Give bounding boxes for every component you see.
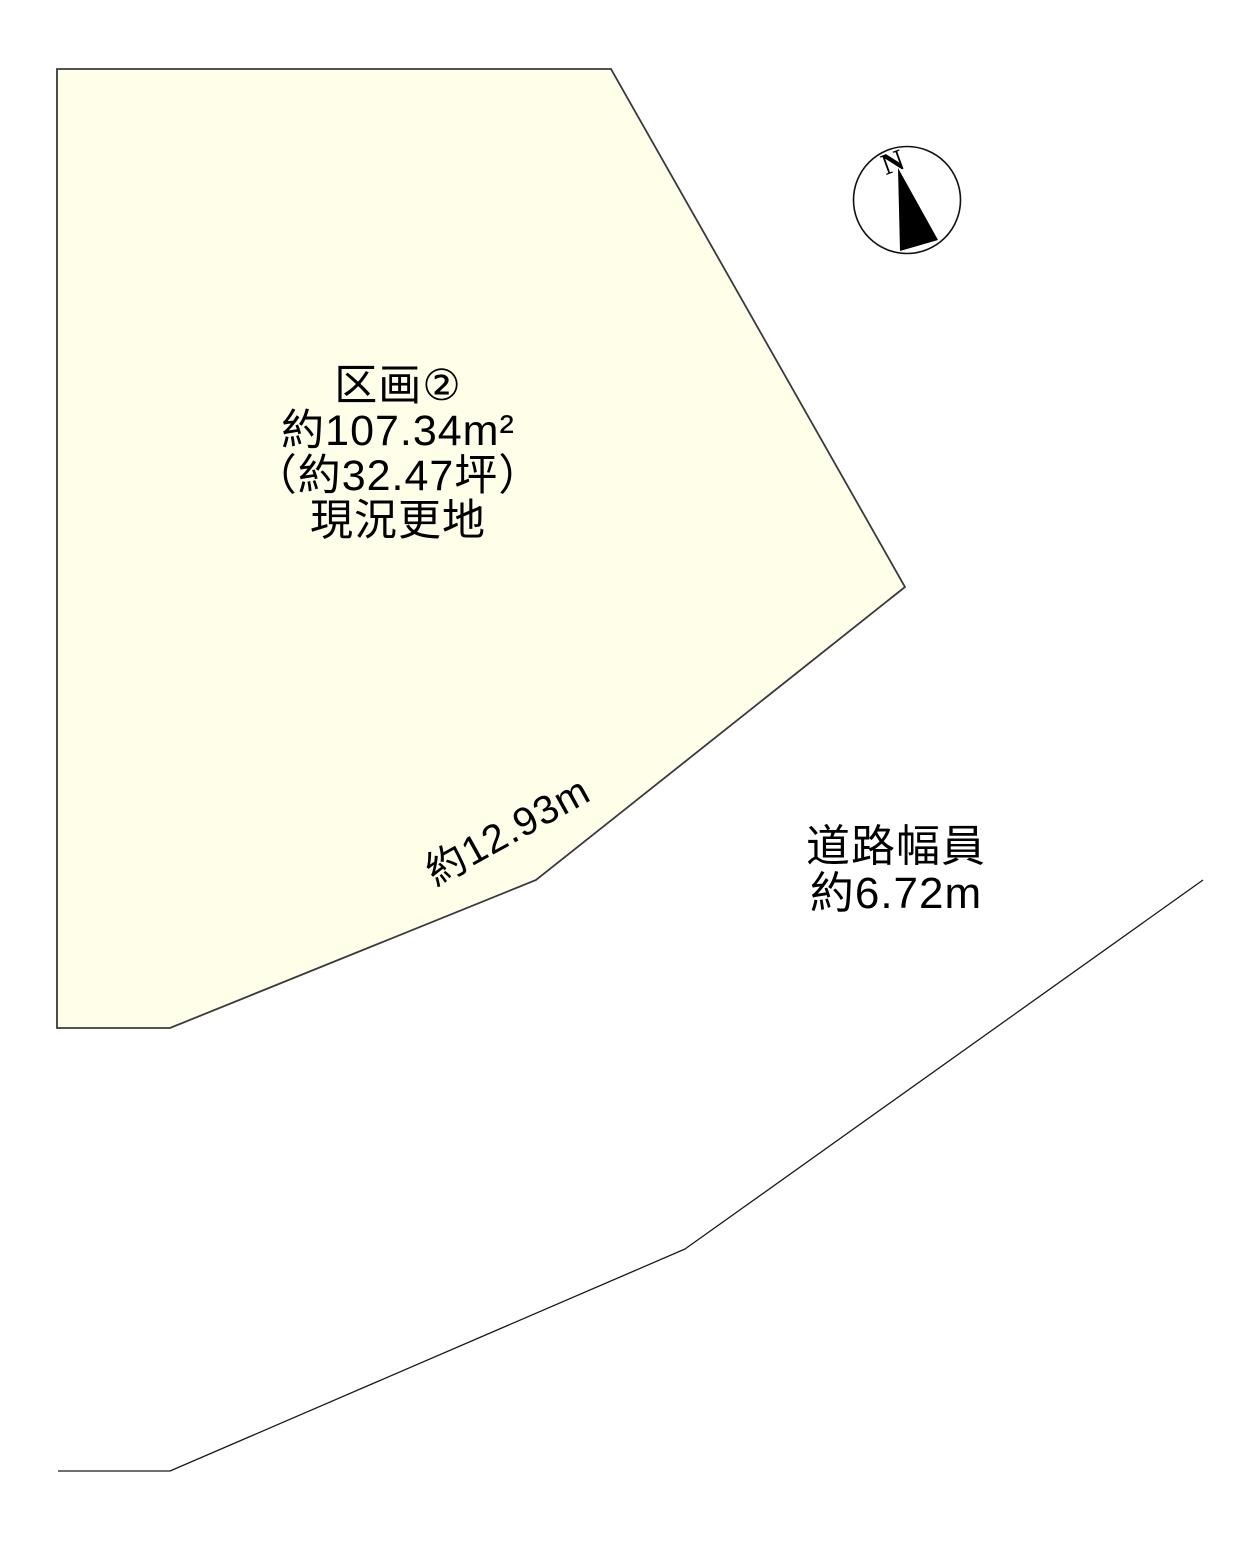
road-width-label-block: 道路幅員 約6.72m [806,823,986,917]
parcel-area-tsubo: （約32.47坪） [254,454,543,499]
parcel-shape [57,69,905,1028]
parcel-label-block: 区画② 約107.34m² （約32.47坪） 現況更地 [254,364,543,544]
parcel-title: 区画② [254,364,543,409]
compass [854,147,961,254]
site-plan-canvas: 区画② 約107.34m² （約32.47坪） 現況更地 約12.93m 道路幅… [0,0,1258,1542]
road-width-value: 約6.72m [806,870,986,917]
road-width-label: 道路幅員 [806,823,986,870]
parcel-condition: 現況更地 [254,499,543,544]
site-plan-drawing [0,0,1258,1542]
parcel-area-sqm: 約107.34m² [254,409,543,454]
